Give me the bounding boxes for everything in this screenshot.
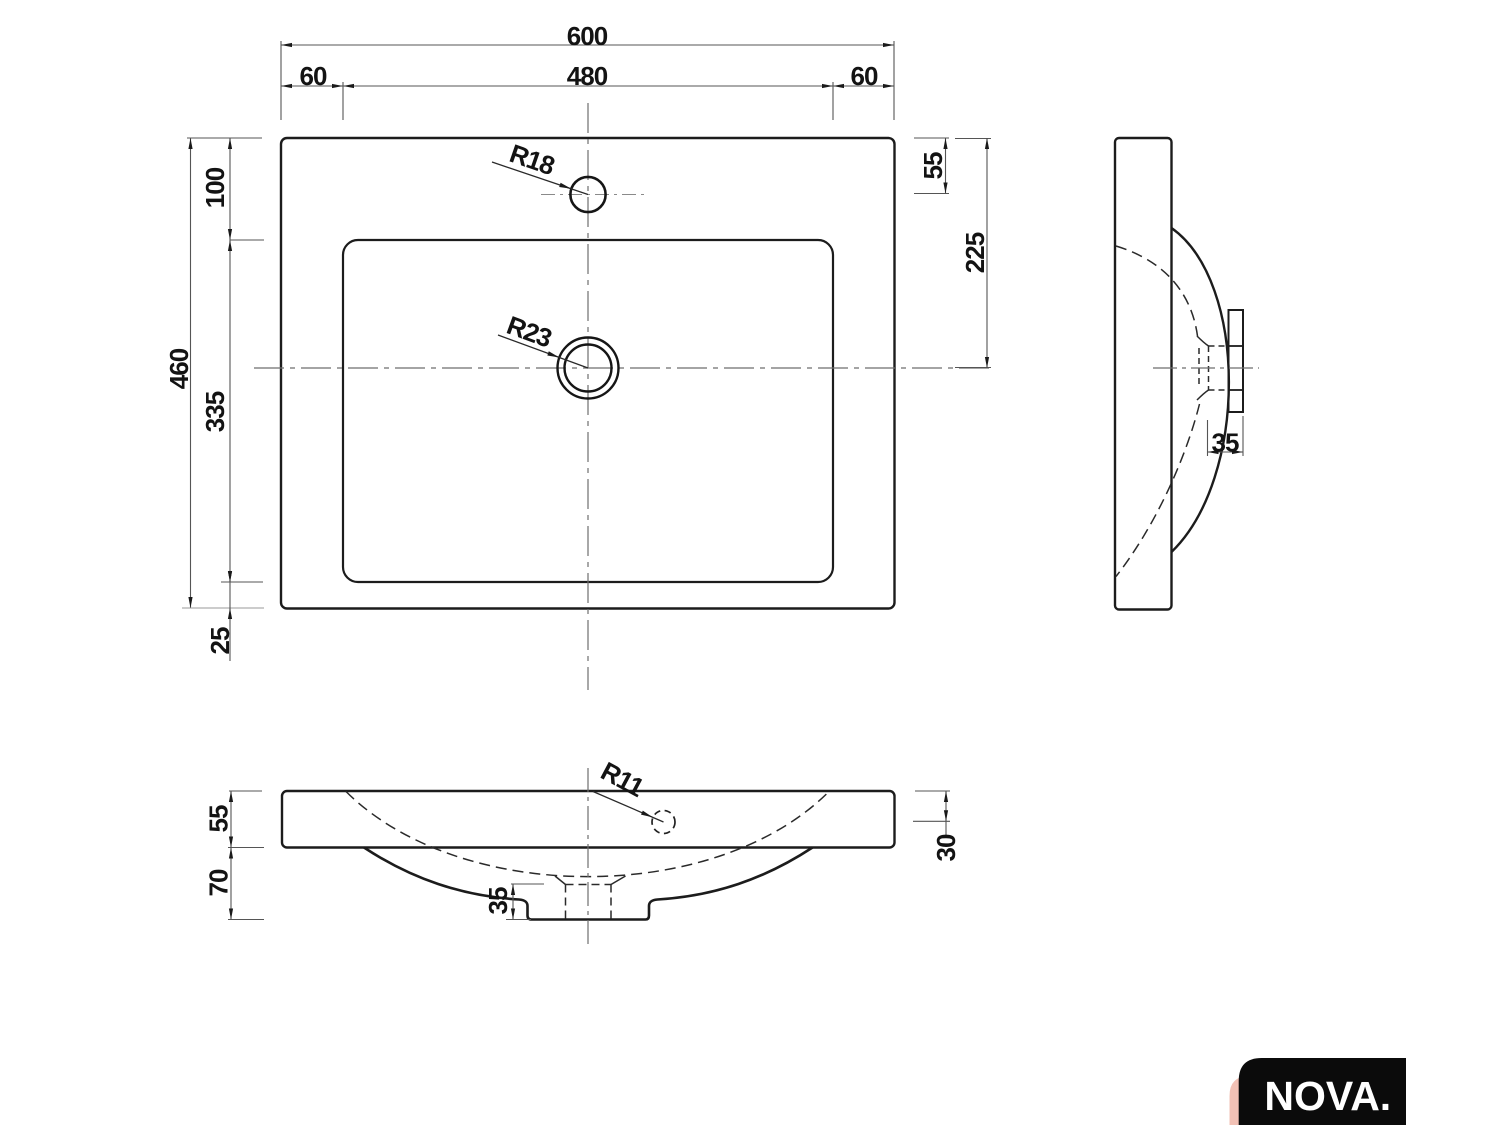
svg-text:35: 35 [1212,428,1239,458]
svg-text:60: 60 [300,61,327,91]
svg-text:25: 25 [205,627,235,654]
svg-text:60: 60 [851,61,878,91]
svg-text:100: 100 [200,167,230,208]
svg-text:600: 600 [567,21,608,51]
svg-text:35: 35 [483,887,513,914]
svg-text:335: 335 [200,391,230,432]
svg-text:NOVA.: NOVA. [1264,1073,1391,1119]
svg-text:55: 55 [918,152,948,179]
svg-text:225: 225 [960,232,990,273]
svg-text:R23: R23 [503,310,556,354]
svg-text:480: 480 [567,61,608,91]
svg-text:30: 30 [931,834,961,861]
svg-text:70: 70 [204,869,234,896]
svg-text:55: 55 [204,805,234,832]
svg-text:R18: R18 [506,138,559,181]
svg-text:460: 460 [164,348,194,389]
